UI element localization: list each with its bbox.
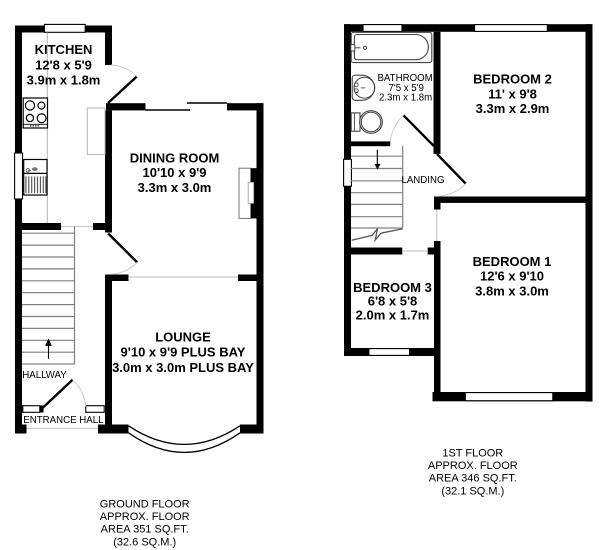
svg-text:GROUND FLOOR: GROUND FLOOR bbox=[100, 499, 190, 511]
svg-text:BEDROOM 2: BEDROOM 2 bbox=[473, 72, 552, 87]
svg-text:1ST FLOOR: 1ST FLOOR bbox=[442, 447, 503, 459]
svg-text:KITCHEN: KITCHEN bbox=[35, 42, 93, 57]
svg-text:LANDING: LANDING bbox=[401, 175, 444, 186]
svg-text:AREA 346 SQ.FT.: AREA 346 SQ.FT. bbox=[429, 473, 517, 485]
svg-text:2.3m x 1.8m: 2.3m x 1.8m bbox=[379, 93, 432, 104]
svg-text:BEDROOM 1: BEDROOM 1 bbox=[473, 254, 552, 269]
svg-text:3.3m x 3.0m: 3.3m x 3.0m bbox=[138, 180, 212, 195]
svg-text:6'8 x 5'8: 6'8 x 5'8 bbox=[368, 294, 418, 309]
svg-text:AREA 351 SQ.FT.: AREA 351 SQ.FT. bbox=[101, 524, 189, 536]
svg-text:DINING ROOM: DINING ROOM bbox=[130, 150, 220, 165]
svg-text:ENTRANCE HALL: ENTRANCE HALL bbox=[23, 415, 104, 426]
svg-text:3.3m x 2.9m: 3.3m x 2.9m bbox=[476, 101, 550, 116]
svg-text:3.9m x 1.8m: 3.9m x 1.8m bbox=[27, 73, 101, 88]
svg-text:12'6 x 9'10: 12'6 x 9'10 bbox=[480, 269, 544, 284]
svg-text:(32.1 SQ.M.): (32.1 SQ.M.) bbox=[441, 485, 504, 497]
svg-text:APPROX. FLOOR: APPROX. FLOOR bbox=[100, 511, 190, 523]
svg-text:APPROX. FLOOR: APPROX. FLOOR bbox=[428, 460, 518, 472]
svg-text:HALLWAY: HALLWAY bbox=[22, 370, 67, 381]
svg-text:12'8 x 5'9: 12'8 x 5'9 bbox=[35, 57, 92, 72]
svg-text:10'10 x 9'9: 10'10 x 9'9 bbox=[142, 165, 206, 180]
svg-text:2.0m x 1.7m: 2.0m x 1.7m bbox=[356, 307, 430, 322]
svg-text:9'10 x 9'9 PLUS BAY: 9'10 x 9'9 PLUS BAY bbox=[121, 345, 246, 360]
svg-text:3.8m x 3.0m: 3.8m x 3.0m bbox=[475, 283, 549, 298]
svg-text:(32.6 SQ.M.): (32.6 SQ.M.) bbox=[113, 536, 176, 548]
svg-text:3.0m x 3.0m PLUS BAY: 3.0m x 3.0m PLUS BAY bbox=[112, 360, 254, 375]
svg-text:11' x 9'8: 11' x 9'8 bbox=[488, 86, 537, 101]
svg-text:LOUNGE: LOUNGE bbox=[155, 330, 211, 345]
